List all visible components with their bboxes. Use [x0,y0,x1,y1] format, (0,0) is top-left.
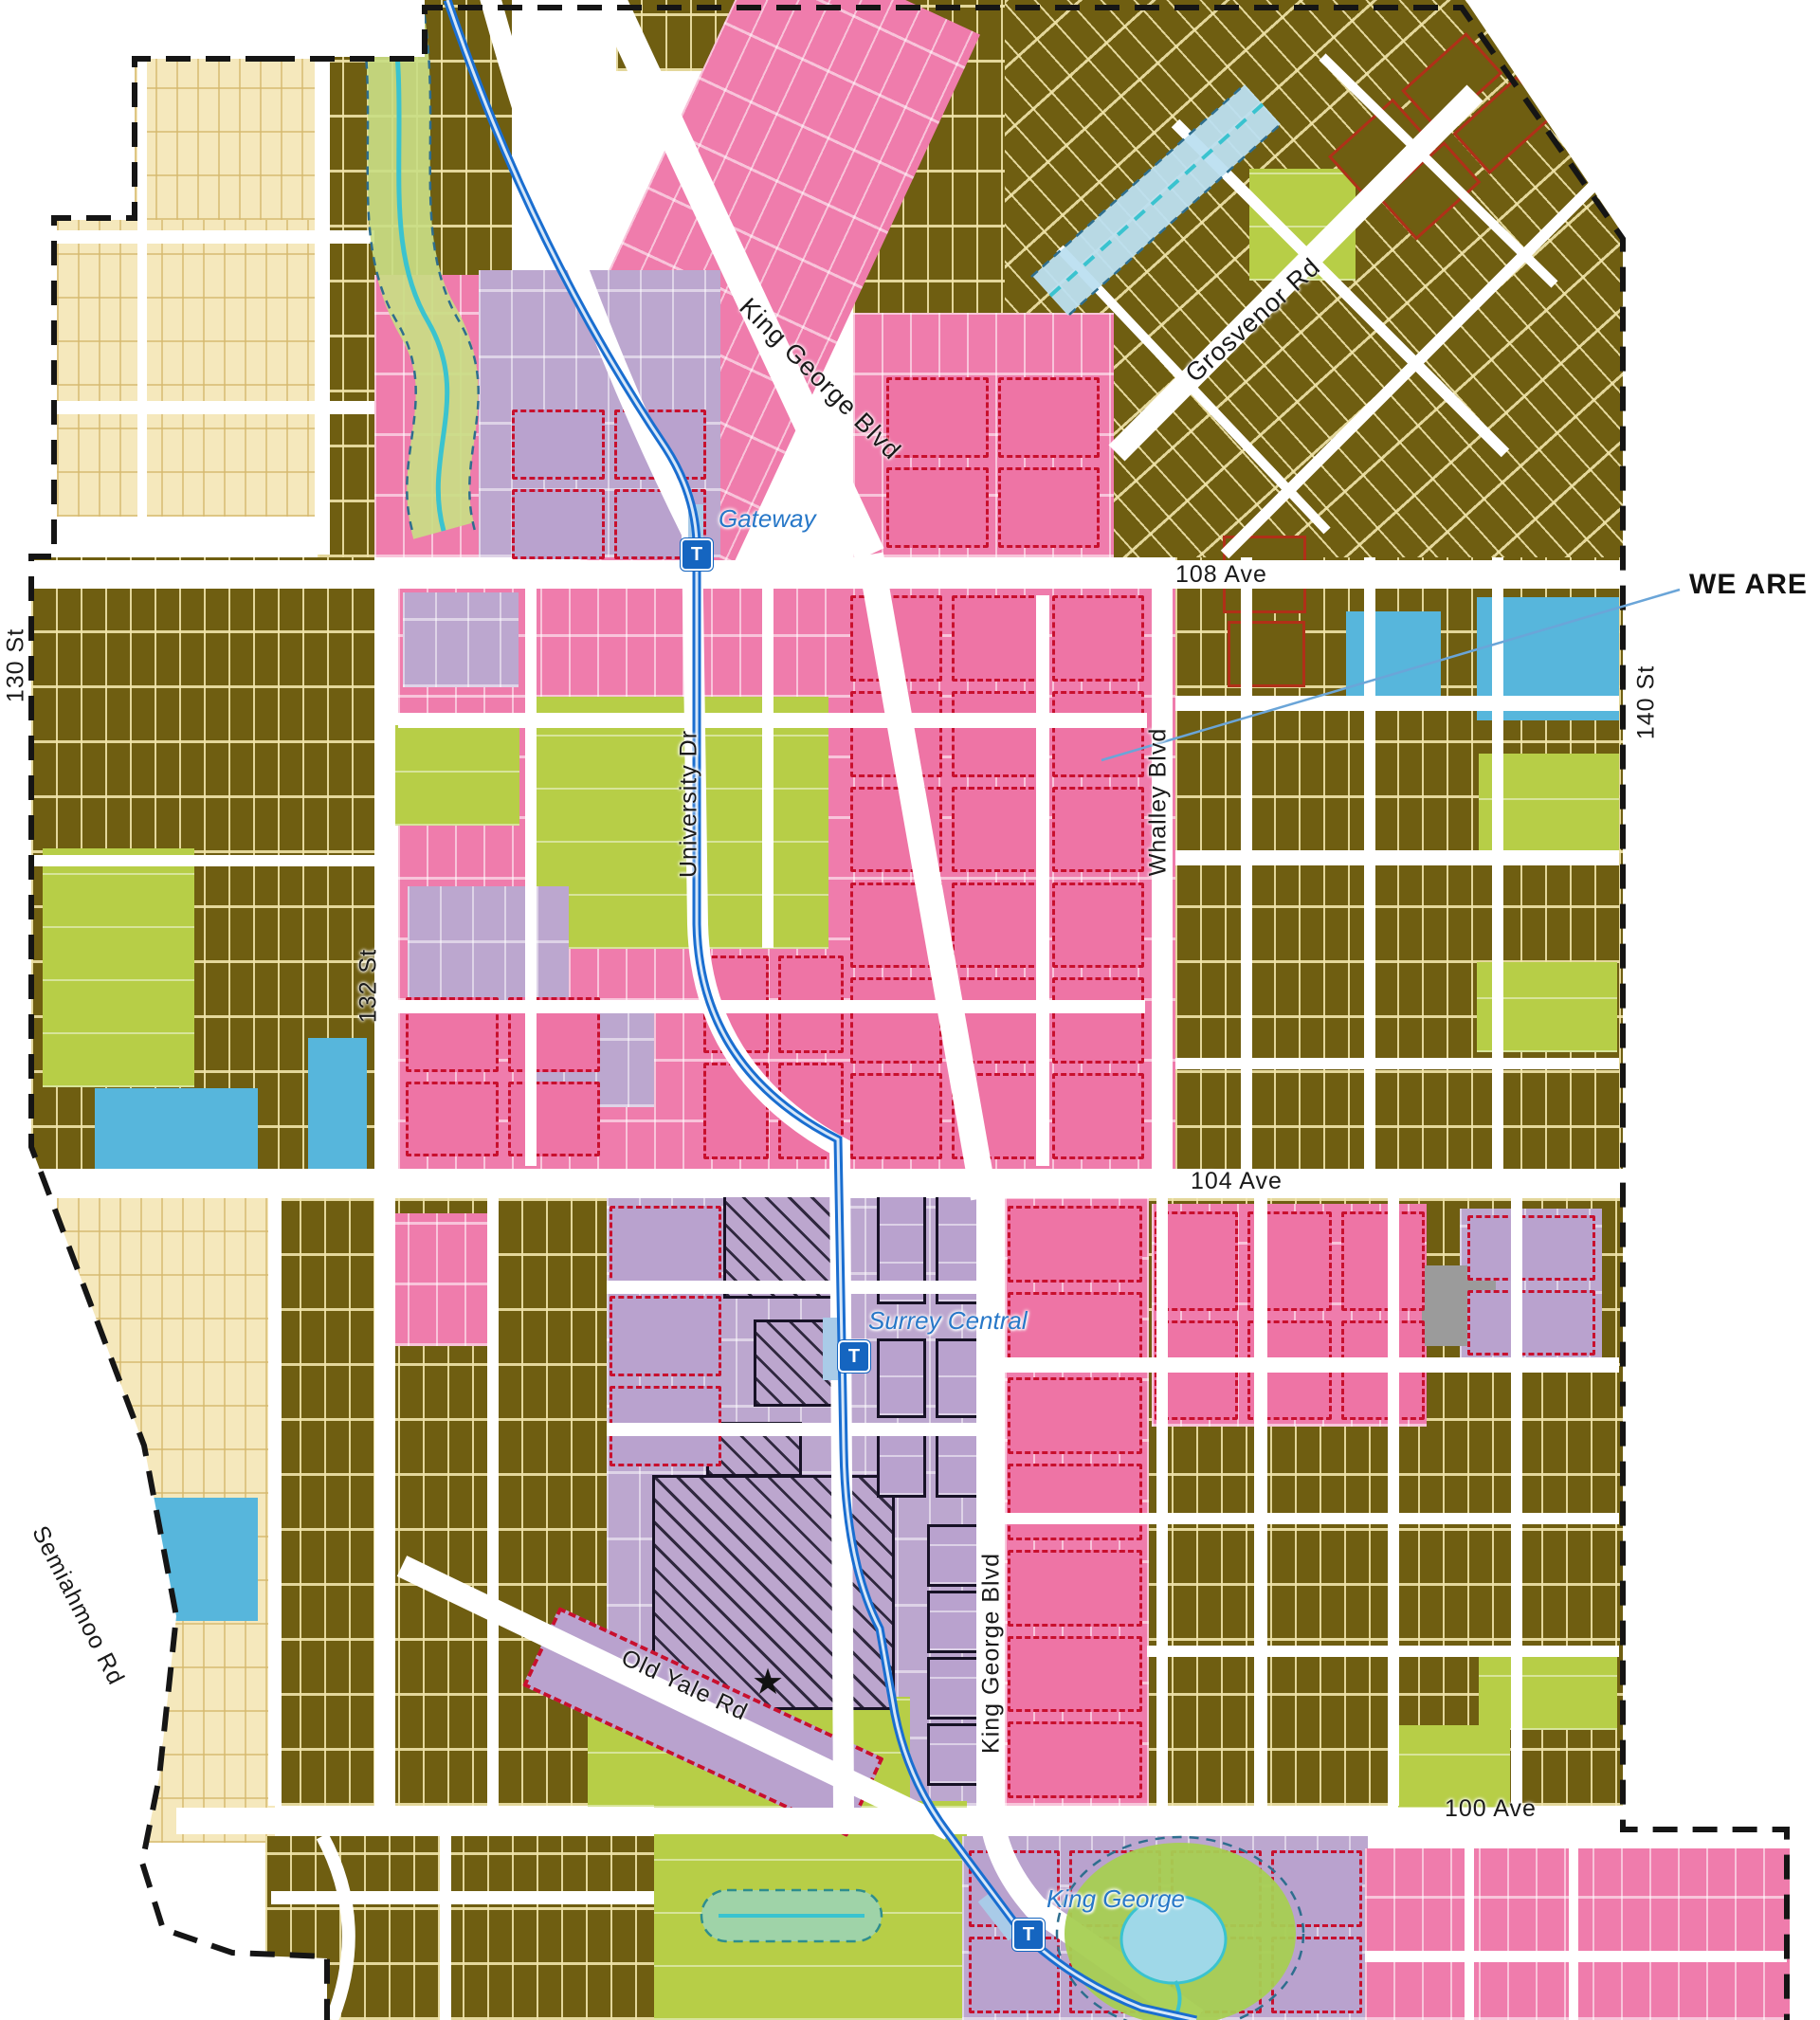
reddash-parcel [850,595,942,682]
reddash-parcel [850,691,942,777]
transit-icon: T [848,1346,860,1368]
zoning-map-canvas[interactable]: T T T Gateway Surrey Central King George… [0,0,1820,2020]
reddash-parcel [1341,1211,1425,1311]
reddash-parcel [1271,1937,1362,2013]
gateway-station-label: Gateway [719,504,816,534]
king-george-station-marker: T [1012,1919,1045,1951]
reddash-parcel [778,1063,844,1160]
transit-icon: T [1023,1924,1034,1946]
reddash-parcel [1052,883,1144,969]
reddash-parcel [1008,1550,1142,1627]
reddash-parcel [850,977,942,1064]
reddash-parcels-layer [0,0,1820,2020]
reddash-parcel [703,1063,769,1160]
reddash-parcel [1008,1636,1142,1713]
reddash-parcel [1008,1464,1142,1540]
reddash-parcel [508,997,601,1072]
reddash-parcel [1467,1215,1595,1281]
reddash-parcel [406,1082,499,1156]
street-label-100-ave: 100 Ave [1445,1795,1537,1823]
reddash-parcel [850,1073,942,1159]
reddash-parcel [1052,787,1144,873]
reddash-parcel [512,409,605,480]
reddash-parcel [1008,1377,1142,1454]
reddash-parcel [1069,1937,1160,2013]
reddash-parcel [614,409,707,480]
reddash-parcel [1247,1320,1331,1420]
reddash-parcel [1052,977,1144,1064]
street-label-university-dr: University Dr [676,730,703,878]
king-george-station-label: King George [1046,1884,1185,1914]
reddash-parcel [1341,1320,1425,1420]
reddash-parcel [512,489,605,559]
street-label-king-george-blvd-south: King George Blvd [978,1553,1006,1754]
reddash-parcel [952,595,1044,682]
reddash-parcel [610,1296,721,1376]
location-star-icon: ★ [752,1665,784,1701]
reddash-parcel [998,377,1101,458]
reddash-parcel [610,1386,721,1466]
surrey-central-station-marker: T [838,1340,870,1373]
reddash-parcel [1052,691,1144,777]
reddash-parcel [610,1206,721,1286]
reddash-parcel [1008,1206,1142,1283]
street-label-whalley-blvd: Whalley Blvd [1145,728,1173,877]
reddash-parcel [1008,1292,1142,1369]
gateway-station-marker: T [681,538,713,571]
reddash-parcel [1171,1937,1262,2013]
reddash-parcel [1271,1850,1362,1927]
reddash-parcel [886,467,989,548]
reddash-parcel [1052,595,1144,682]
reddash-parcel [850,787,942,873]
reddash-parcel [1467,1290,1595,1356]
street-label-104-ave: 104 Ave [1191,1168,1283,1195]
reddash-parcel [1052,1073,1144,1159]
reddash-parcel [778,955,844,1053]
reddash-parcel [952,883,1044,969]
street-label-140-st: 140 St [1633,665,1661,739]
reddash-parcel [952,787,1044,873]
reddash-parcel [952,977,1044,1064]
street-label-130-st: 130 St [3,628,30,702]
reddash-parcel [1155,1211,1238,1311]
street-label-132-st: 132 St [355,949,383,1023]
we-are-annotation: WE ARE [1689,569,1808,601]
transit-icon: T [691,544,702,566]
reddash-parcel [406,997,499,1072]
reddash-parcel [850,883,942,969]
reddash-parcel [998,467,1101,548]
reddash-parcel [1247,1211,1331,1311]
street-label-108-ave: 108 Ave [1175,561,1267,589]
reddash-parcel [952,691,1044,777]
reddash-parcel [1155,1320,1238,1420]
reddash-parcel [703,955,769,1053]
surrey-central-station-label: Surrey Central [868,1306,1028,1336]
reddash-parcel [508,1082,601,1156]
reddash-parcel [952,1073,1044,1159]
reddash-parcel [1008,1721,1142,1798]
